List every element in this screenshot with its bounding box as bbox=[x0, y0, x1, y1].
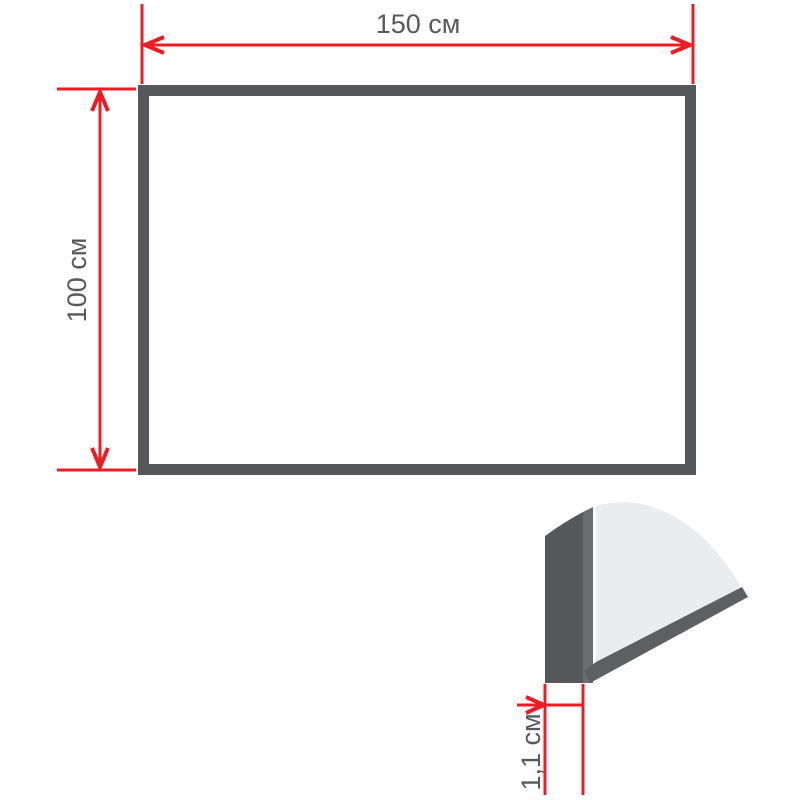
edge-profile-edge-band bbox=[583, 507, 593, 683]
edge-profile-side bbox=[545, 512, 583, 683]
width-dimension-label: 150 см bbox=[376, 9, 461, 39]
product-dimension-image: 150 см 100 см 1,1 см bbox=[0, 0, 800, 800]
height-dimension: 100 см bbox=[57, 89, 136, 470]
width-dimension: 150 см bbox=[142, 4, 693, 84]
thickness-dimension: 1,1 см bbox=[516, 684, 583, 795]
board-surface bbox=[149, 96, 685, 464]
edge-profile-view bbox=[545, 502, 748, 683]
board-dimensions-diagram: 150 см 100 см 1,1 см bbox=[0, 0, 800, 800]
height-dimension-label: 100 см bbox=[62, 238, 92, 323]
thickness-dimension-label: 1,1 см bbox=[516, 713, 546, 790]
board-front-view bbox=[138, 85, 696, 475]
